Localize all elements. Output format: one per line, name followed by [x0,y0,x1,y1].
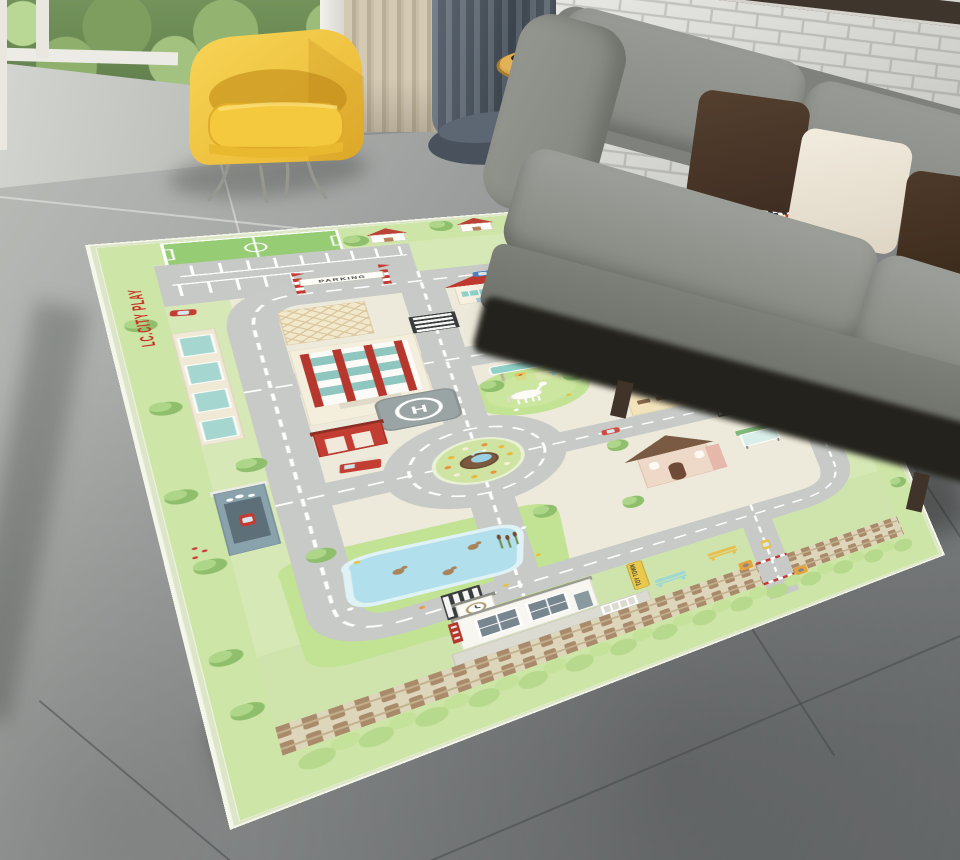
window-post [0,0,7,150]
living-room-photo: PARKING [0,0,960,860]
window-post [36,0,49,58]
yellow-armchair [165,8,385,208]
chair-cushion [209,104,343,148]
chair-legs [209,163,326,201]
